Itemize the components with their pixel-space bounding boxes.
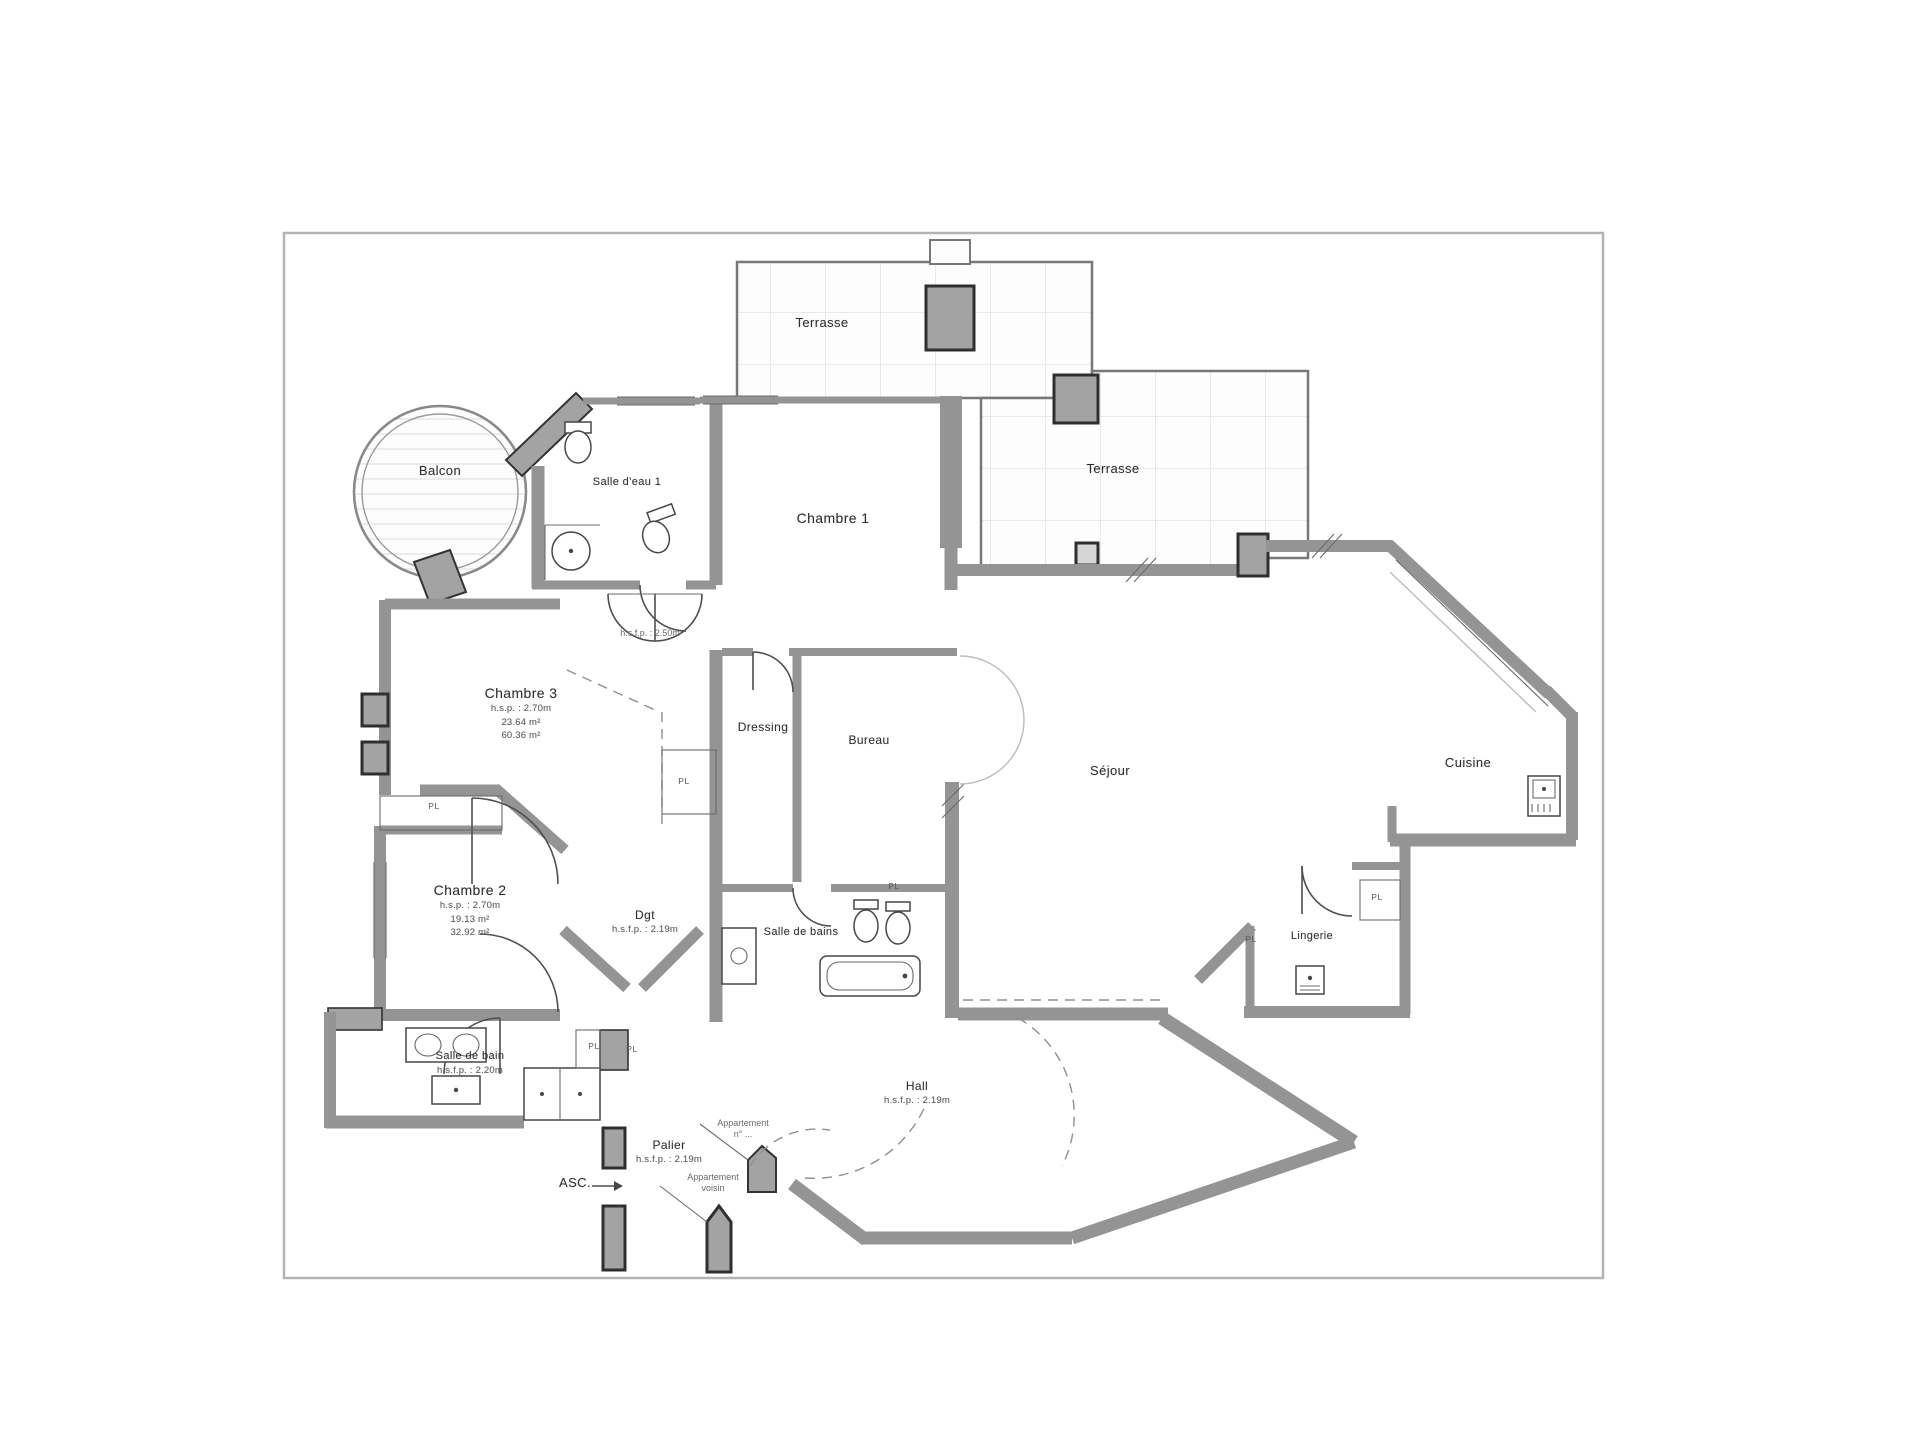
pillar-icon <box>1054 375 1098 423</box>
annotation-height-note-dgt-upper: h.s.f.p. : 2.50m <box>620 628 680 639</box>
closet-label: PL <box>1371 892 1382 902</box>
closet-label: PL <box>678 776 689 786</box>
room-measurement: 19.13 m² <box>434 915 507 925</box>
room-label-terrasse-right: Terrasse <box>1086 462 1139 475</box>
room-measurement: h.s.p. : 2.70m <box>485 704 558 714</box>
annotation-entry-note-2: Appartementvoisin <box>687 1172 739 1195</box>
window-stub <box>362 694 388 726</box>
bidet-icon <box>638 518 673 557</box>
closet-label: PL <box>888 881 899 891</box>
room-label-bureau: Bureau <box>848 734 889 746</box>
room-label-salle-deau-1: Salle d'eau 1 <box>593 477 661 488</box>
closet-label: PL <box>1245 934 1256 944</box>
bidet-icon <box>854 910 878 942</box>
room-name: Chambre 1 <box>797 511 870 525</box>
closet-label: PL <box>626 1044 637 1054</box>
room-label-asc: ASC. <box>559 1176 591 1189</box>
toilet-icon <box>565 431 591 463</box>
closet-label: PL <box>588 1041 599 1051</box>
room-label-dressing: Dressing <box>738 721 789 733</box>
room-name: Dgt <box>612 909 678 921</box>
room-name: Cuisine <box>1445 756 1491 769</box>
room-name: Salle d'eau 1 <box>593 477 661 488</box>
room-label-dgt: Dgth.s.f.p. : 2.19m <box>612 909 678 935</box>
room-name: Palier <box>636 1139 702 1151</box>
room-measurement: h.s.f.p. : 2.20m <box>436 1066 505 1076</box>
room-label-chambre-1: Chambre 1 <box>797 511 870 525</box>
room-name: Salle de bains <box>764 927 839 938</box>
dashed-lines <box>567 670 1160 1000</box>
terrace-top <box>737 240 1092 398</box>
room-name: ASC. <box>559 1176 591 1189</box>
room-label-cuisine: Cuisine <box>1445 756 1491 769</box>
floor-plan: TerrasseTerrasseBalconSalle d'eau 1Chamb… <box>0 0 1920 1440</box>
room-name: Terrasse <box>1086 462 1139 475</box>
pillar-icon <box>926 286 974 350</box>
room-measurement: h.s.p. : 2.70m <box>434 901 507 911</box>
room-label-chambre-3: Chambre 3h.s.p. : 2.70m23.64 m²60.36 m² <box>485 686 558 741</box>
elevator-arrow-icon <box>592 1181 623 1191</box>
room-label-balcon: Balcon <box>419 464 461 477</box>
room-measurement: h.s.f.p. : 2.19m <box>884 1096 950 1106</box>
post-icon <box>1076 543 1098 565</box>
closet-label: PL <box>428 801 439 811</box>
balcony <box>354 393 592 604</box>
room-name: Séjour <box>1090 764 1130 777</box>
room-label-salle-de-bain: Salle de bainh.s.f.p. : 2.20m <box>436 1051 505 1076</box>
room-name: Bureau <box>848 734 889 746</box>
room-label-lingerie: Lingerie <box>1291 931 1333 942</box>
room-label-chambre-2: Chambre 2h.s.p. : 2.70m19.13 m²32.92 m² <box>434 883 507 938</box>
room-name: Salle de bain <box>436 1051 505 1062</box>
window-stub <box>362 742 388 774</box>
room-name: Balcon <box>419 464 461 477</box>
floor-plan-drawing <box>0 0 1920 1440</box>
room-label-palier: Palierh.s.f.p. : 2.19m <box>636 1139 702 1165</box>
room-name: Dressing <box>738 721 789 733</box>
annotation-entry-note-1: Appartementn° ... <box>717 1118 769 1141</box>
room-name: Terrasse <box>795 316 848 329</box>
room-name: Chambre 3 <box>485 686 558 700</box>
room-name: Lingerie <box>1291 931 1333 942</box>
room-label-terrasse-top: Terrasse <box>795 316 848 329</box>
room-measurement: 32.92 m² <box>434 928 507 938</box>
room-measurement: h.s.f.p. : 2.19m <box>636 1155 702 1165</box>
room-name: Chambre 2 <box>434 883 507 897</box>
room-label-sejour: Séjour <box>1090 764 1130 777</box>
toilet-icon <box>886 912 910 944</box>
room-measurement: 23.64 m² <box>485 718 558 728</box>
room-label-salle-de-bains: Salle de bains <box>764 927 839 938</box>
room-label-hall: Hallh.s.f.p. : 2.19m <box>884 1080 950 1106</box>
room-name: Hall <box>884 1080 950 1092</box>
room-measurement: 60.36 m² <box>485 731 558 741</box>
room-measurement: h.s.f.p. : 2.19m <box>612 925 678 935</box>
